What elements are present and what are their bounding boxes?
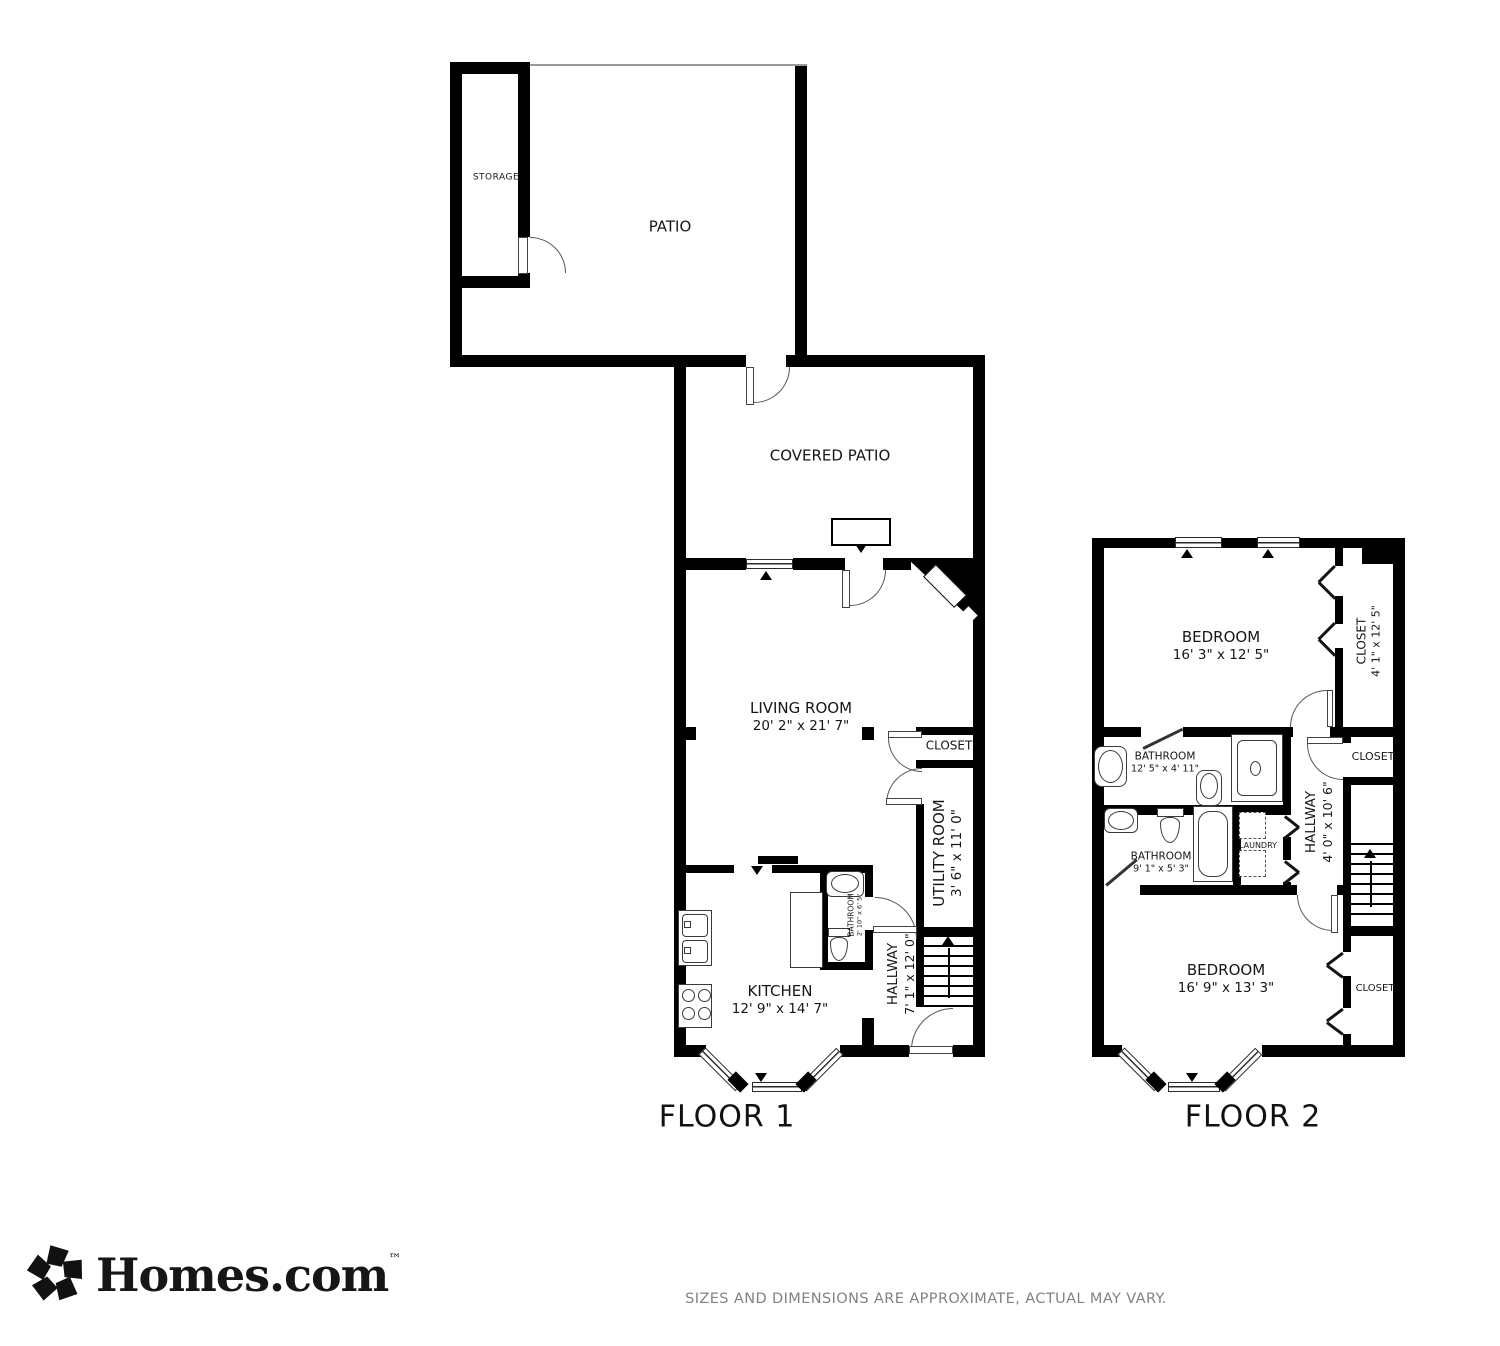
room-label-covered-patio: COVERED PATIO	[770, 447, 891, 466]
floorplan-labels: STORAGE PATIO COVERED PATIO LIVING ROOM …	[0, 0, 1500, 1346]
room-label-closet-bottom: CLOSET	[1356, 983, 1395, 996]
room-dims: 16' 3" x 12' 5"	[1173, 647, 1270, 664]
room-label-bathroom-top: BATHROOM 12' 5" x 4' 11"	[1131, 751, 1199, 776]
room-name: HALLWAY	[885, 933, 902, 1014]
room-name: UTILITY ROOM	[930, 799, 949, 906]
room-dims: 7' 1" x 12' 0"	[902, 933, 918, 1014]
room-name: BATHROOM	[1131, 751, 1199, 764]
room-label-bathroom-mid: BATHROOM 9' 1" x 5' 3"	[1131, 851, 1192, 876]
room-dims: 12' 9" x 14' 7"	[732, 1001, 829, 1018]
room-label-closet-mid: CLOSET	[1352, 750, 1395, 764]
room-label-laundry: LAUNDRY	[1239, 841, 1277, 851]
room-label-living-room: LIVING ROOM 20' 2" x 21' 7"	[750, 699, 852, 735]
trademark-mark: ™	[388, 1252, 401, 1267]
room-dims: 2' 10" x 6' 5"	[856, 893, 864, 936]
room-name: KITCHEN	[732, 982, 829, 1001]
room-label-bathroom-f1: BATHROOM 2' 10" x 6' 5"	[846, 893, 864, 936]
room-dims: 4' 0" x 10' 6"	[1320, 781, 1336, 862]
room-label-patio: PATIO	[649, 218, 692, 237]
brand-name: Homes.com	[96, 1248, 388, 1302]
floor2-title: FLOOR 2	[1185, 1100, 1322, 1135]
room-label-bedroom-top: BEDROOM 16' 3" x 12' 5"	[1173, 628, 1270, 664]
room-dims: 16' 9" x 13' 3"	[1178, 980, 1275, 997]
room-name: LIVING ROOM	[750, 699, 852, 718]
room-name: CLOSET	[1355, 605, 1370, 677]
room-label-closet-top: CLOSET 4' 1" x 12' 5"	[1355, 605, 1384, 677]
floor1-title: FLOOR 1	[659, 1100, 796, 1135]
disclaimer-text: SIZES AND DIMENSIONS ARE APPROXIMATE, AC…	[685, 1291, 1167, 1307]
room-label-closet-f1: CLOSET	[926, 739, 973, 754]
room-dims: 9' 1" x 5' 3"	[1131, 864, 1192, 876]
room-label-hallway-f1: HALLWAY 7' 1" x 12' 0"	[885, 933, 918, 1014]
room-label-utility-room: UTILITY ROOM 3' 6" x 11' 0"	[930, 799, 966, 906]
room-label-kitchen: KITCHEN 12' 9" x 14' 7"	[732, 982, 829, 1018]
room-label-storage: STORAGE	[473, 172, 519, 183]
room-name: BATHROOM	[846, 893, 855, 936]
room-name: HALLWAY	[1303, 781, 1320, 862]
room-dims: 3' 6" x 11' 0"	[949, 799, 966, 906]
room-label-hallway-f2: HALLWAY 4' 0" x 10' 6"	[1303, 781, 1336, 862]
room-name: BEDROOM	[1178, 961, 1275, 980]
room-dims: 12' 5" x 4' 11"	[1131, 764, 1199, 776]
room-name: BEDROOM	[1173, 628, 1270, 647]
room-dims: 4' 1" x 12' 5"	[1370, 605, 1384, 677]
homes-logo-icon	[24, 1238, 88, 1310]
room-name: BATHROOM	[1131, 851, 1192, 864]
homes-logo-text: Homes.com™	[96, 1248, 401, 1302]
room-label-bedroom-bottom: BEDROOM 16' 9" x 13' 3"	[1178, 961, 1275, 997]
floorplan-image: STORAGE PATIO COVERED PATIO LIVING ROOM …	[0, 0, 1500, 1346]
room-dims: 20' 2" x 21' 7"	[750, 718, 852, 735]
